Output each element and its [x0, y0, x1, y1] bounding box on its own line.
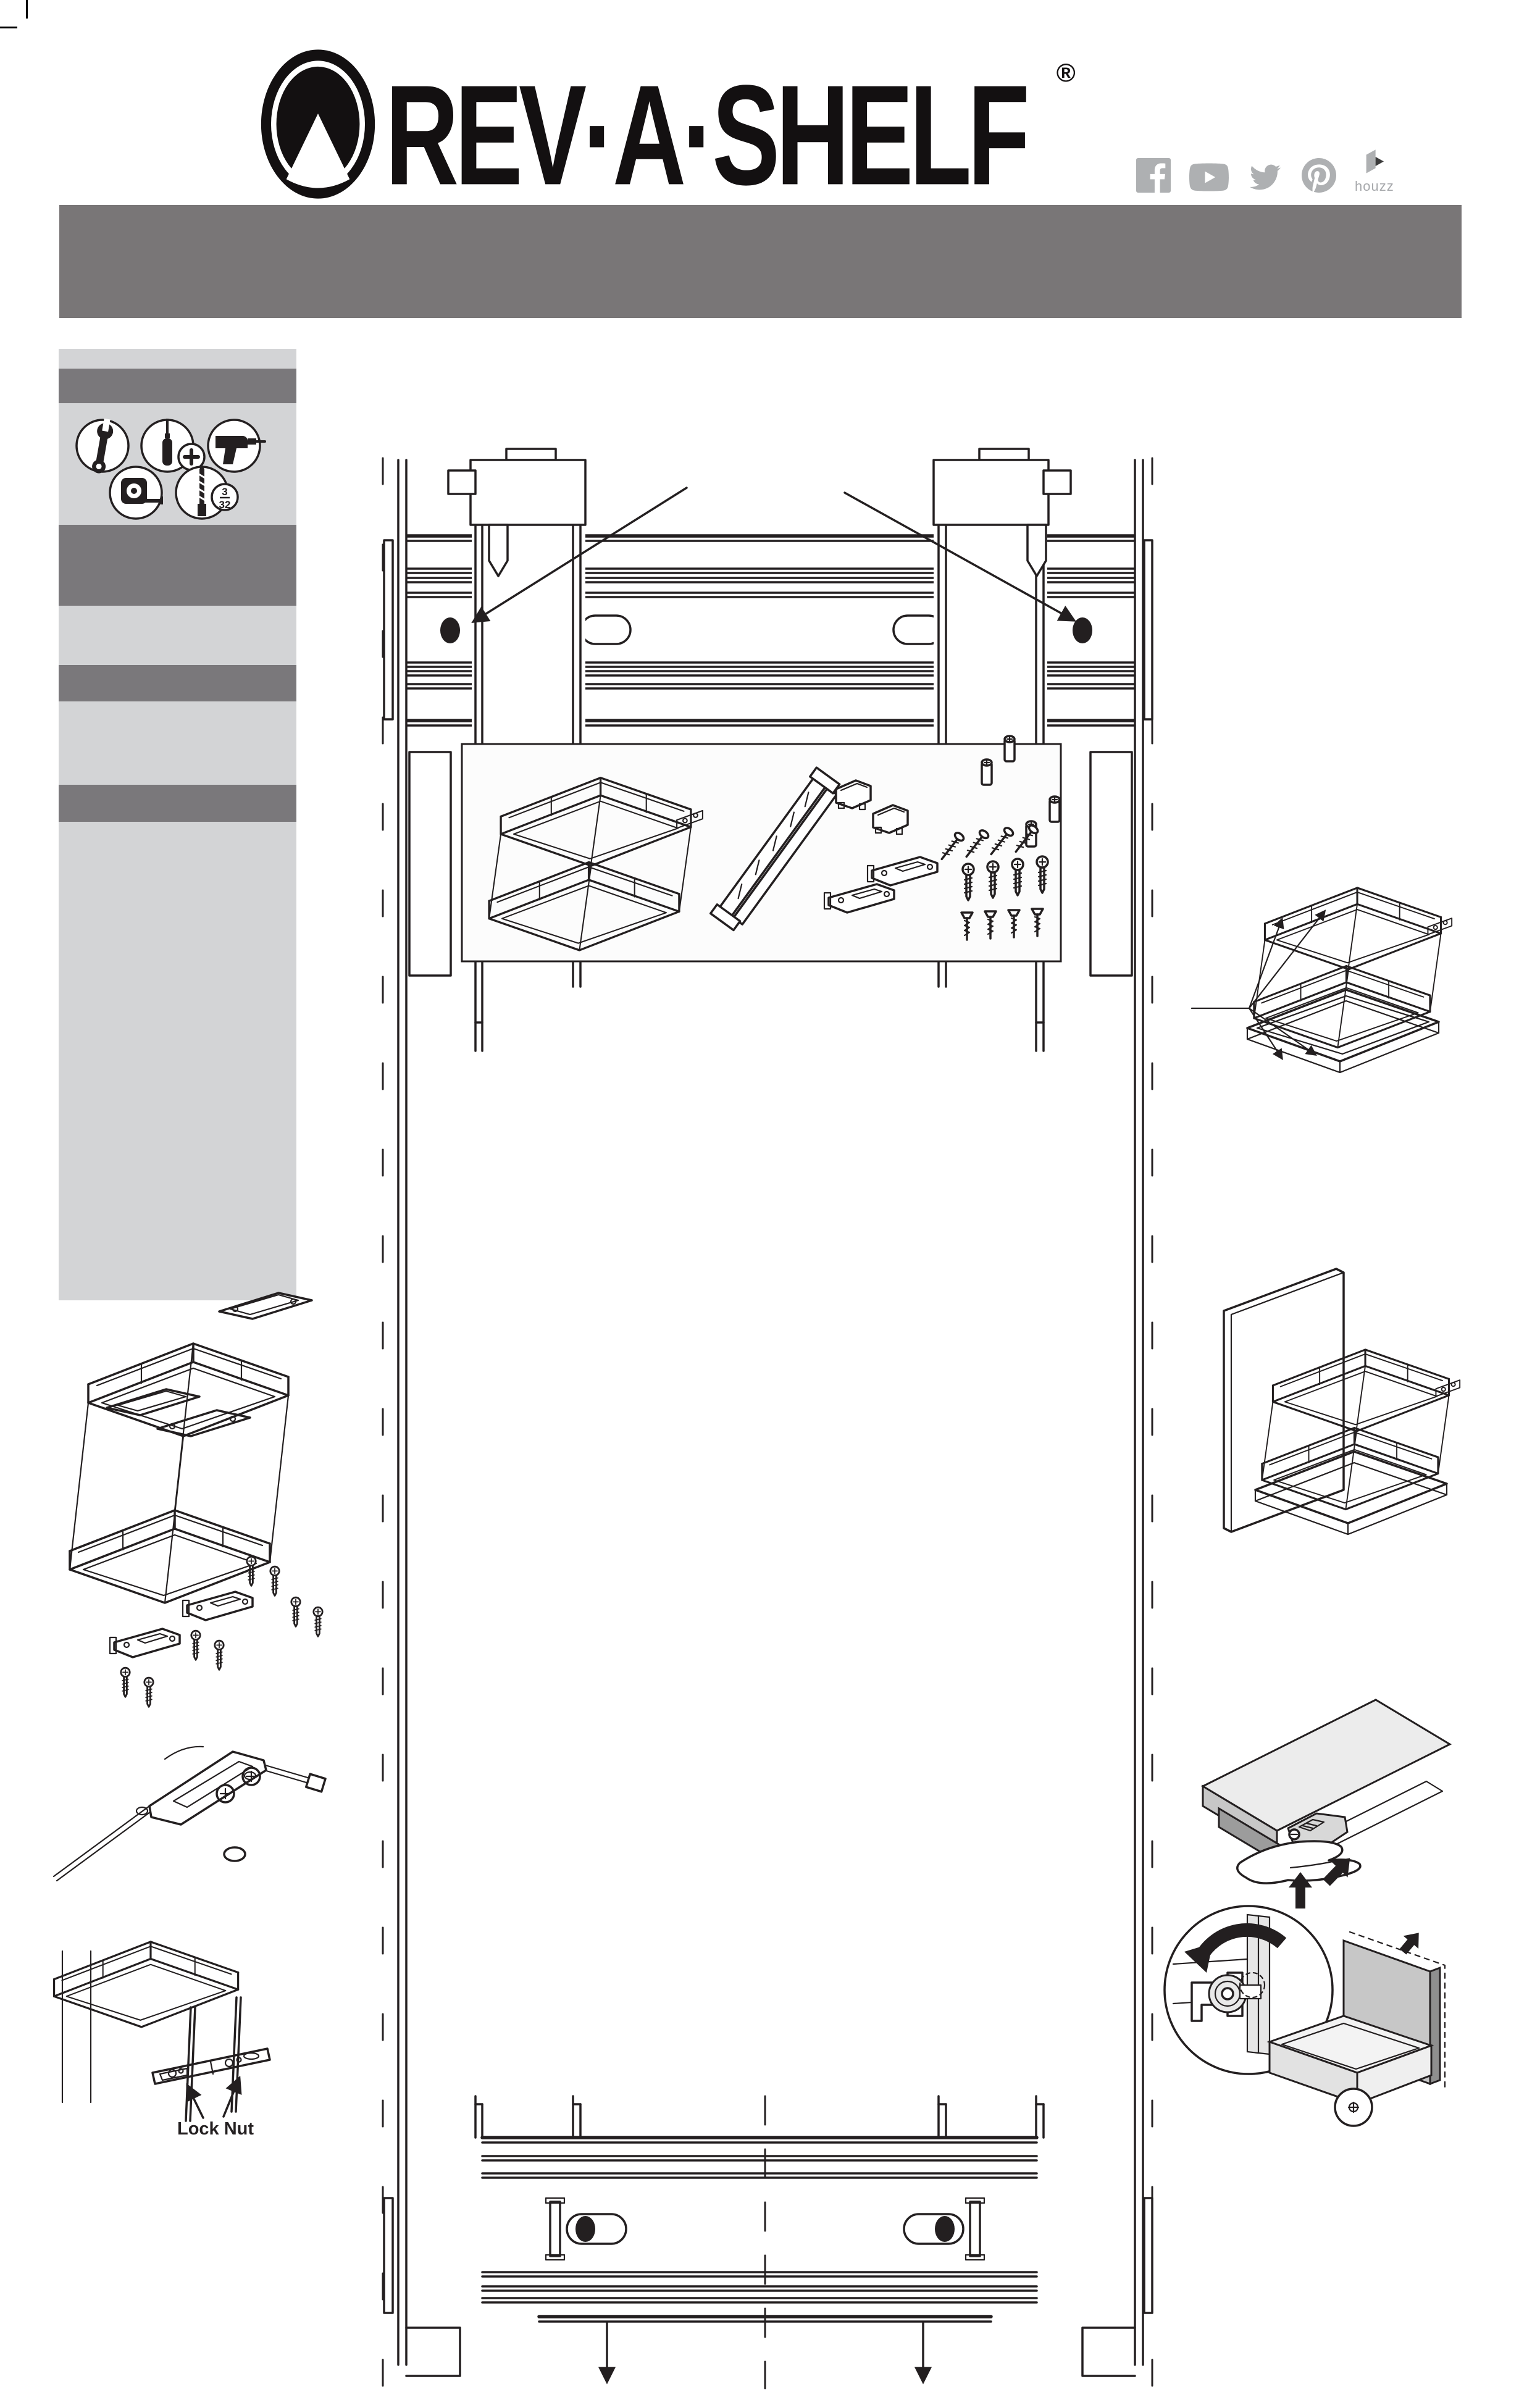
houzz-glyph [1362, 147, 1387, 179]
title-banner [59, 205, 1462, 318]
bottom-pilot-hole-right [935, 2216, 955, 2242]
required-tools-icons: 3 32 [59, 403, 296, 525]
pilot-hole-right [1073, 617, 1092, 643]
cam-detail-diagram [1155, 1892, 1463, 2164]
drill-bit-size-denominator: 32 [219, 499, 231, 511]
exploded-basket-diagram [34, 1290, 361, 1723]
lock-nut-tray [54, 1942, 238, 2027]
parts-standoff-2 [982, 759, 992, 785]
lock-nut-label: Lock Nut [177, 2119, 254, 2139]
parts-standoff-1 [1005, 736, 1015, 761]
rev-a-shelf-logo-icon [259, 44, 377, 204]
crop-mark-top-left-h [0, 27, 17, 28]
pinterest-icon [1302, 158, 1336, 193]
rotation-arrow-head [1184, 1943, 1213, 1973]
sidebar-heading-band-1 [59, 369, 296, 403]
registered-trademark: ® [1057, 58, 1076, 88]
sidebar-heading-band-2 [59, 525, 296, 606]
wrench-icon [77, 417, 128, 474]
rev-a-shelf-logo: REV·A·SHELF ® [259, 44, 1076, 204]
drill-bit-size-numerator: 3 [222, 486, 227, 498]
closeup-oval-hole [224, 1847, 245, 1861]
phillips-screwdriver-icon [141, 419, 204, 472]
tape-measure-icon [110, 467, 163, 519]
crop-mark-top-left-v [26, 0, 28, 19]
sidebar-heading-band-3 [59, 665, 296, 701]
logo-wordmark: REV·A·SHELF [385, 56, 1026, 215]
pilot-hole-left [440, 617, 460, 643]
houzz-icon: houzz [1355, 147, 1394, 193]
basket-panel-diagram [1192, 1263, 1476, 1602]
youtube-icon [1189, 162, 1229, 193]
cabinet-side-panel [1224, 1269, 1344, 1532]
lock-nut-diagram: Lock Nut [22, 1917, 306, 2192]
sidebar-strip-1 [59, 349, 296, 369]
houzz-wordmark: houzz [1355, 180, 1394, 193]
closeup-bracket-plate [149, 1747, 266, 1825]
drawer-assembly [1270, 1926, 1445, 2126]
drill-bit-size-badge: 3 32 [212, 484, 238, 511]
cabinet-elevation-drawing [358, 441, 1173, 2408]
bracket-closeup-diagram [22, 1707, 349, 1936]
sidebar-text-block-1 [59, 606, 296, 665]
facebook-icon [1136, 158, 1171, 193]
basket-callout-diagram [1192, 855, 1476, 1182]
instruction-sheet-page: REV·A·SHELF ® houzz [0, 0, 1519, 2408]
rail-slot-left [581, 616, 630, 644]
sidebar-text-block-2 [59, 701, 296, 785]
bottom-pilot-hole-left [575, 2216, 595, 2242]
drill-icon [208, 420, 265, 472]
exploded-brackets-and-screws [110, 1557, 322, 1707]
twitter-icon [1247, 162, 1283, 193]
social-icons: houzz [1136, 147, 1394, 193]
lock-nut-bracket-bar [153, 2049, 270, 2084]
sidebar-heading-band-4 [59, 785, 296, 822]
callout-basket [1254, 888, 1452, 1048]
callout-base-slide [1247, 990, 1439, 1072]
sidebar-text-block-3 [59, 822, 296, 1300]
parts-standoff-3 [1050, 796, 1060, 822]
parts-box [462, 736, 1061, 961]
bottom-mounting-rail [384, 2096, 1152, 2388]
